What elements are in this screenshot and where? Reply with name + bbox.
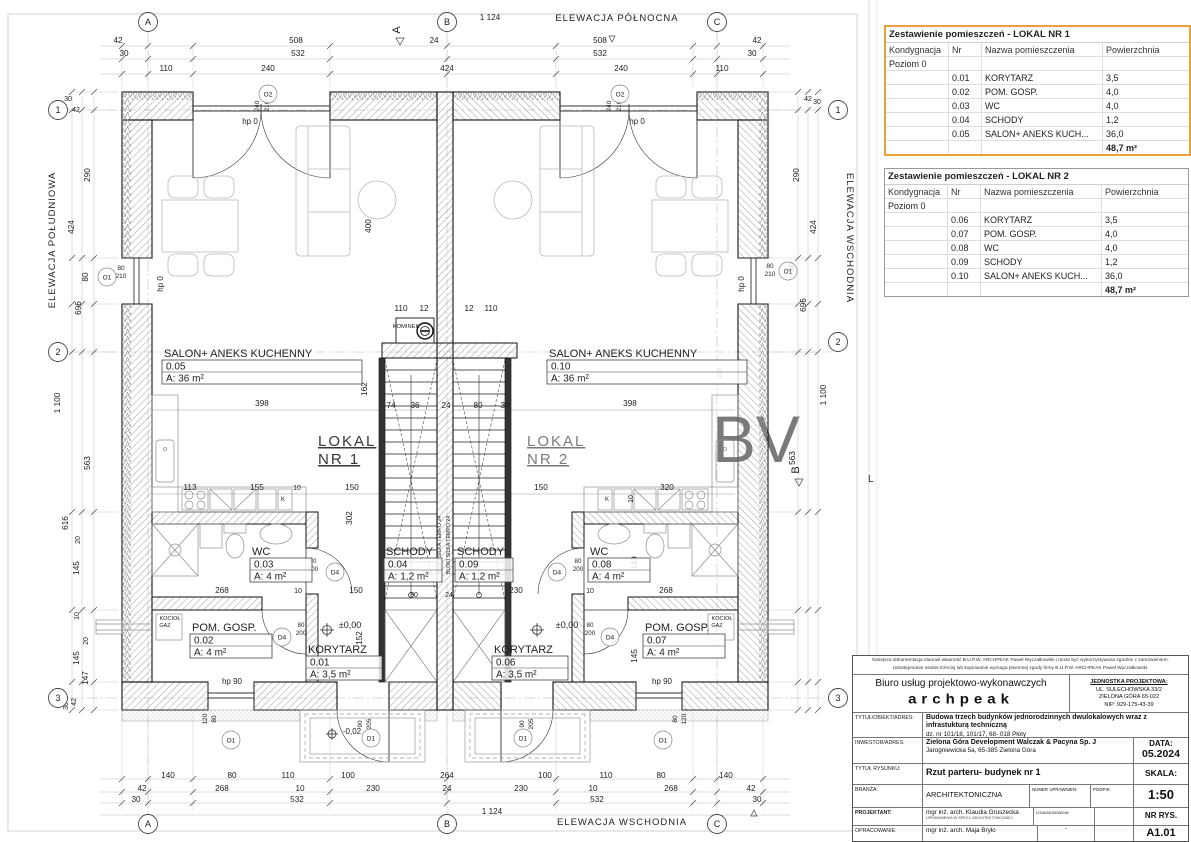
cell-powierzchnia: 3,5 [1101,213,1188,226]
dim-label: 398 [623,399,637,408]
room-area: A: 3,5 m² [496,670,537,681]
cell-nazwa: SCHODY [981,113,1102,126]
cell-nr: 0.01 [948,71,981,84]
cell-powierzchnia: 4,0 [1101,241,1188,254]
dim-label: 24 [441,401,451,410]
design-unit-label: JEDNOSTKA PROJEKTOWA: [1070,679,1188,687]
investor-address: Jarogniewicka 5a, 65-385 Zielona Góra [926,747,1130,755]
room-name: POM. GOSP. [192,622,257,634]
dim-label: 42 [72,107,80,114]
dim-label: 80 [473,401,483,410]
dim-label: 210 [765,271,776,278]
level-label: Poziom 0 [886,57,948,70]
dim-label: 532 [593,49,607,58]
dim-label: 400 [364,219,373,233]
grid-bubble-label: 1 [835,105,840,115]
room-number: 0.10 [551,362,571,373]
dim-label: 110 [281,771,294,780]
dim-label: 12 [419,304,429,313]
room-number: 0.06 [496,658,516,669]
dim-label: 30 [131,795,141,804]
dim-label: 110 [159,64,172,73]
grid-bubble-label: B [444,17,450,27]
unit-mark-line1: LOKAL [527,433,585,450]
branch-label: BRANŻA: [853,785,922,807]
office-name: Biuro usług projektowo-wykonawczych [853,678,1069,689]
opening-symbol-label: D4 [553,570,562,577]
disclaimer-line1: Niniejsza dokumentacja stanowi własność … [853,656,1188,666]
design-unit-nip: NIP: 929-175-43-39 [1070,702,1188,710]
cell [947,283,980,296]
grid-bubble-label: 1 [55,105,60,115]
cell [981,57,1102,70]
total-area: 48,7 m² [1102,141,1189,154]
dim-label: 1 100 [53,392,62,413]
unit-mark: LOKALNR 1 [318,433,376,468]
dim-label: 532 [590,795,604,804]
dim-label: 30 [64,96,72,103]
dim-label: 100 [538,771,552,780]
design-unit: JEDNOSTKA PROJEKTOWA: UL. SULECHOWSKA 33… [1069,675,1188,712]
dim-label: K [281,497,285,503]
designer-license: LOIA/26/2008/GW [1033,808,1094,825]
investor-label: INWESTOR/ADRES: [853,738,922,763]
dim-label: 230 [509,586,523,595]
room-area: A: 4 m² [194,648,227,659]
cell-kondygnacja [886,113,948,126]
dim-label: 210 [116,273,127,280]
date-value: 05.2024 [1134,748,1188,760]
header-nazwa: Nazwa pomieszczenia [981,43,1102,56]
dim-label: hp 0 [737,276,746,292]
cell-powierzchnia: 36,0 [1102,127,1189,140]
room-area: A: 4 m² [647,648,680,659]
dim-label: 155 [250,483,264,492]
designer-label: PROJEKTANT: [853,808,922,825]
dim-label: 240 [261,64,275,73]
dim-label: 398 [255,399,269,408]
dim-label: ±0,00 [339,620,361,630]
opening-symbol-label: O2 [616,92,625,99]
dim-label: 30 [500,401,510,410]
header-nr: Nr [948,43,981,56]
room-name: POM. GOSP. [645,622,710,634]
opening-symbol-label: D4 [606,635,615,642]
dim-label: 10 [588,784,598,793]
unit-mark-line1: LOKAL [318,433,376,450]
elevation-east: ELEWACJA WSCHODNIA [844,173,855,303]
room-area: A: 1,2 m² [459,572,500,583]
dim-label: 696 [799,298,808,312]
dim-label: 1 124 [480,13,501,22]
dim-label: 80 [227,771,237,780]
dim-label: 145 [72,561,81,575]
dim-label: 10 [293,485,301,492]
dim-label: 696 [74,301,83,315]
disclaimer-line2: Udostępnianie osobie trzeciej lub kopiow… [853,666,1188,674]
dim-label: hp 90 [222,677,243,686]
grid-bubble-label: A [145,17,151,27]
opening-symbol-label: O1 [784,269,793,276]
room-number: 0.01 [310,658,330,669]
room-area: A: 4 m² [592,572,625,583]
cell-nr: 0.09 [947,255,980,268]
dim-label: hp 90 [652,677,673,686]
room-label: KORYTARZ0.01A: 3,5 m² [306,644,382,681]
dim-label: 30 [747,49,757,58]
grid-bubble-label: 3 [835,693,840,703]
designer-name: mgr inż. arch. Klaudia Gruszecka [926,809,1030,816]
table-row: 0.06KORYTARZ3,5 [885,213,1188,227]
room-label: SCHODY0.04A: 1,2 m² [384,546,442,583]
grid-bubble-label: C [714,17,721,27]
dim-label: 140 [161,771,175,780]
room-name: WC [252,546,270,558]
cell [947,199,980,212]
cell-kondygnacja [885,213,947,226]
room-number: 0.08 [592,560,612,571]
dim-label: 80 [298,622,305,629]
dim-label: 42 [137,784,147,793]
cell-powierzchnia: 4,0 [1101,227,1188,240]
dim-label: 80 [410,592,418,599]
cell-nazwa: SALON+ ANEKS KUCH... [980,269,1101,282]
header-kondygnacja: Kondygnacja [885,185,947,198]
dim-label: 10 [74,612,81,620]
cell-nazwa: KORYTARZ [980,213,1101,226]
table-row: 0.04SCHODY1,2 [886,113,1189,127]
room-label: POM. GOSP.0.02A: 4 m² [190,622,272,659]
cell-nr: 0.02 [948,85,981,98]
room-number: 0.04 [388,560,408,571]
designer-signature [1094,808,1133,825]
room-number: 0.07 [647,636,667,647]
dim-label: 200 [296,630,307,637]
cell-nazwa: SALON+ ANEKS KUCH... [981,127,1102,140]
header-nazwa: Nazwa pomieszczenia [980,185,1101,198]
section-mark: B [790,466,802,473]
room-number: 0.05 [166,362,186,373]
dim-label: 424 [440,64,454,73]
cell-nr: 0.10 [947,269,980,282]
dim-label: 147 [81,671,90,685]
dim-label: 42 [752,36,762,45]
dim-label: 42 [71,698,78,706]
dim-label: KOMINEK [393,324,420,330]
dim-label: 1 100 [819,384,828,405]
dim-label: 424 [67,220,76,234]
table-row: 0.03WC4,0 [886,99,1189,113]
dim-label: KOCIOŁ [712,616,733,622]
dim-label: 10 [586,588,594,595]
dim-line [815,89,821,95]
dim-label: KOCIOŁ [160,616,181,622]
cell-nr: 0.07 [947,227,980,240]
room-name: KORYTARZ [308,644,367,656]
license-number-label: NUMER UPRAWNIEŃ: [1029,785,1090,807]
dim-label: 264 [440,771,454,780]
cell [948,57,981,70]
dim-label: 36 [410,401,420,410]
investor-name: Zielona Góra Development Walczak & Pacyn… [926,739,1130,747]
scale-value: 1:50 [1133,785,1188,807]
dim-label: 110 [484,304,497,313]
dim-label: 140 [719,771,733,780]
section-mark: A [391,26,403,34]
title-block: Niniejsza dokumentacja stanowi własność … [852,655,1189,842]
room-name: SCHODY [457,546,505,558]
dim-label: 24 [445,592,453,599]
dim-label: 20 [75,536,82,544]
cell-kondygnacja [885,269,947,282]
cell-nazwa: KORYTARZ [981,71,1102,84]
dim-label: 100 [341,771,355,780]
cell-kondygnacja [885,227,947,240]
cell-powierzchnia: 1,2 [1101,255,1188,268]
cell [886,141,948,154]
opening-symbol-label: O2 [264,92,273,99]
drawing-no-label: NR RYS. [1133,808,1188,825]
opening-symbol-label: O1 [103,275,112,282]
unit-mark-line2: NR 1 [318,451,360,468]
cell-kondygnacja [885,255,947,268]
prepared-name: mgr inż. arch. Maja Bryło [922,826,1037,841]
dim-label: 268 [659,586,673,595]
dim-label: 24 [429,36,439,45]
dim-label: 120 [202,713,209,724]
cell-nazwa: WC [981,99,1102,112]
dim-label: 42 [113,36,123,45]
cell-nr: 0.08 [947,241,980,254]
date-label: DATA: [1134,738,1188,748]
opening-symbol-label: O1 [659,738,668,745]
dim-label: 150 [534,483,548,492]
cell [948,141,981,154]
dim-label: 30 [752,795,762,804]
table-total-row: 48,7 m² [885,283,1188,296]
dim-label: 616 [61,516,70,530]
cell-powierzchnia: 36,0 [1101,269,1188,282]
room-name: SALON+ ANEKS KUCHENNY [549,348,698,360]
cell-kondygnacja [885,241,947,254]
design-unit-address1: UL. SULECHOWSKA 33/2 [1070,687,1188,695]
dim-label: 80 [117,265,125,272]
dim-label: 24 [442,784,452,793]
opening-symbol-label: D4 [278,635,287,642]
room-area: A: 4 m² [254,572,287,583]
prepared-signature [1094,826,1133,841]
dim-label: 80 [575,558,582,565]
cell-powierzchnia: 1,2 [1102,113,1189,126]
room-label: SCHODY0.09A: 1,2 m² [455,546,513,583]
dim-label: 532 [291,49,305,58]
cell-nr: 0.05 [948,127,981,140]
header-powierzchnia: Powierzchnia [1102,43,1189,56]
table-row: 0.07POM. GOSP.4,0 [885,227,1188,241]
room-name: SALON+ ANEKS KUCHENNY [164,348,313,360]
prepared-label: OPRACOWANIE: [853,826,922,841]
room-name: WC [590,546,608,558]
dim-label: 110 [394,304,407,313]
dim-label: 42 [746,784,756,793]
dim-label: GAZ [711,623,723,629]
level-label: Poziom 0 [885,199,947,212]
dim-label: 200 [585,630,596,637]
cell [1102,57,1189,70]
room-name: SCHODY [386,546,434,558]
dim-label: 290 [792,168,801,182]
dim-label: 563 [83,456,92,470]
dim-label: 80 [211,715,218,723]
dim-label: 80 [672,715,679,723]
cell-nr: 0.04 [948,113,981,126]
room-number: 0.03 [254,560,274,571]
dim-label: 120 [681,713,688,724]
dim-label: 268 [215,784,229,793]
cell-kondygnacja [886,99,948,112]
designer-qualification: UPRAWNIENIA W SPECJ. ARCHITEKTONICZNEJ [926,816,1030,820]
cell [980,199,1101,212]
dim-label: 90 [519,720,526,728]
dim-label: 145 [630,649,639,663]
dim-label: 1 124 [482,807,503,816]
prepared-dash: - [1037,826,1094,841]
table-row: 0.08WC4,0 [885,241,1188,255]
cell-nazwa: WC [980,241,1101,254]
cell-kondygnacja [886,85,948,98]
dim-label: 150 [349,586,363,595]
table-header-row: KondygnacjaNrNazwa pomieszczeniaPowierzc… [885,185,1188,199]
cell-powierzchnia: 3,5 [1102,71,1189,84]
unit-mark: LOKALNR 2 [527,433,585,468]
cell-nr: 0.06 [947,213,980,226]
table-total-row: 48,7 m² [886,141,1189,154]
dim-label: 30 [119,49,129,58]
dim-label: 145 [72,651,81,665]
table-title: Zestawienie pomieszczeń - LOKAL NR 2 [885,169,1188,185]
dim-label: 240 [614,64,628,73]
dim-label: hp 0 [156,276,165,292]
table-row: 0.09SCHODY1,2 [885,255,1188,269]
dim-label: 230 [366,784,380,793]
office-header: Biuro usług projektowo-wykonawczych arch… [853,675,1069,712]
grid-bubble-label: C [714,819,721,829]
cell-kondygnacja [886,71,948,84]
dim-label: 110 [599,771,612,780]
room-label: SALON+ ANEKS KUCHENNY0.05A: 36 m² [162,348,362,385]
cell-nr: 0.03 [948,99,981,112]
unit-mark-line2: NR 2 [527,451,569,468]
room-label: SALON+ ANEKS KUCHENNY0.10A: 36 m² [547,348,747,385]
dim-label: ±0,00 [556,620,578,630]
table-level-row: Poziom 0 [886,57,1189,71]
room-area: A: 36 m² [166,374,204,385]
dim-label: 74 [386,401,396,410]
dim-label: 508 [593,36,607,45]
dim-label: 80 [766,263,774,270]
drawing-no-value: A1.01 [1133,826,1188,841]
room-label: WC0.08A: 4 m² [588,546,650,583]
dim-label: 268 [664,784,678,793]
elevation-bottom: ELEWACJA WSCHODNIA [557,817,687,828]
cell [1101,199,1188,212]
dim-label: 230 [514,784,528,793]
elevation-south: ELEWACJA POŁUDNIOWA [47,172,58,309]
dim-label: 320 [660,483,674,492]
cell [981,141,1102,154]
room-table-lokal2: Zestawienie pomieszczeń - LOKAL NR 2Kond… [884,168,1189,297]
project-title: Budowa trzech budynków jednorodzinnych d… [926,714,1185,731]
room-area: A: 36 m² [551,374,589,385]
dim-label: 268 [215,586,229,595]
grid-bubble-label: 3 [55,693,60,703]
total-area: 48,7 m² [1101,283,1188,296]
dim-label: 80 [587,622,594,629]
cell-nazwa: POM. GOSP. [981,85,1102,98]
cell-nazwa: POM. GOSP. [980,227,1101,240]
opening-symbol-label: O1 [227,738,236,745]
dim-label: -0,02 [343,727,362,736]
dim-label: 80 [656,771,666,780]
branch-value: ARCHITEKTONICZNA [922,785,1029,807]
table-level-row: Poziom 0 [885,199,1188,213]
opening-symbol-label: D1 [367,736,376,743]
dim-label: 508 [289,36,303,45]
dim-label: 424 [809,220,818,234]
dim-label: 42 [804,96,812,103]
dim-label: 205 [528,718,535,729]
table-row: 0.05SALON+ ANEKS KUCH...36,0 [886,127,1189,141]
dim-label: K [605,497,609,503]
opening-symbol-label: D4 [331,570,340,577]
room-area: A: 3,5 m² [310,670,351,681]
drawing-sheet: BV L [0,0,1191,842]
table-row: 0.02POM. GOSP.4,0 [886,85,1189,99]
cell-powierzchnia: 4,0 [1102,99,1189,112]
dim-label: BLOKI SILKA TEMPO 24 [446,516,452,574]
dim-label: 200 [573,566,584,573]
header-powierzchnia: Powierzchnia [1101,185,1188,198]
dim-label: 150 [345,483,359,492]
room-label: KORYTARZ0.06A: 3,5 m² [492,644,568,681]
header-kondygnacja: Kondygnacja [886,43,948,56]
signature-label: PODPIS: [1090,785,1133,807]
unit-left-geometry [96,92,437,762]
dim-label: 113 [183,483,196,492]
grid-bubble-label: 2 [835,337,840,347]
header-nr: Nr [947,185,980,198]
table-header-row: KondygnacjaNrNazwa pomieszczeniaPowierzc… [886,43,1189,57]
dim-label: 152 [355,631,364,645]
room-table-lokal1: Zestawienie pomieszczeń - LOKAL NR 1Kond… [884,25,1191,156]
scale-label: SKALA: [1133,764,1188,784]
dim-label: GAZ [159,623,171,629]
dim-label: 205 [366,718,373,729]
archpeak-logo: archpeak [853,692,1069,708]
cell-kondygnacja [886,127,948,140]
opening-symbol-label: D1 [519,736,528,743]
dim-label: 10 [628,495,635,503]
room-number: 0.09 [459,560,479,571]
drawing-title: Rzut parteru- budynek nr 1 [922,764,1133,784]
dim-label: 110 [715,64,728,73]
room-label: WC0.03A: 4 m² [250,546,312,583]
elevation-north: ELEWACJA PÓŁNOCNA [555,13,678,24]
cell [980,283,1101,296]
room-name: KORYTARZ [494,644,553,656]
dim-label: 10 [295,784,305,793]
room-number: 0.02 [194,636,214,647]
